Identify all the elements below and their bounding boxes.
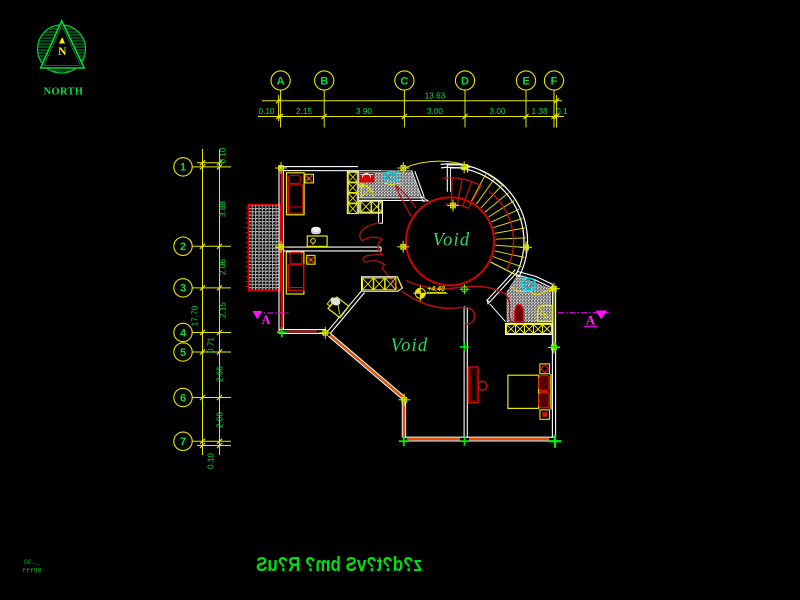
svg-text:6: 6 <box>180 392 186 404</box>
svg-text:2: 2 <box>180 241 186 253</box>
svg-text:3.90: 3.90 <box>356 107 372 116</box>
svg-text:2.08: 2.08 <box>216 412 225 428</box>
svg-text:17.70: 17.70 <box>191 305 200 326</box>
svg-text:3.00: 3.00 <box>427 107 443 116</box>
svg-text:A: A <box>586 313 596 328</box>
svg-text:1.38: 1.38 <box>532 107 548 116</box>
svg-text:A: A <box>277 75 285 87</box>
svg-text:2.06: 2.06 <box>219 259 228 275</box>
svg-text:z?d?t?vS bm? R?uS: z?d?t?vS bm? R?uS <box>256 553 422 576</box>
svg-text:1: 1 <box>180 162 186 174</box>
svg-text:C: C <box>400 75 408 87</box>
svg-text:F: F <box>551 75 558 87</box>
svg-text:0.1: 0.1 <box>556 107 568 116</box>
svg-text:0.10: 0.10 <box>259 107 275 116</box>
svg-text:0.71: 0.71 <box>207 337 216 353</box>
svg-text:N: N <box>58 46 67 58</box>
svg-text:2.66: 2.66 <box>216 366 225 382</box>
svg-text:E: E <box>522 75 529 87</box>
svg-text:5: 5 <box>180 347 186 359</box>
svg-text:2.15: 2.15 <box>219 302 228 318</box>
svg-text:GC._: GC._ <box>24 559 40 566</box>
svg-text:Void: Void <box>391 336 429 356</box>
svg-text:0.10: 0.10 <box>207 453 216 469</box>
svg-text:7: 7 <box>180 436 186 448</box>
svg-text:A: A <box>261 313 270 327</box>
svg-text:B: B <box>320 75 328 87</box>
svg-text:Void: Void <box>433 231 471 251</box>
svg-text:0.10: 0.10 <box>219 147 228 163</box>
svg-text:3.88: 3.88 <box>219 201 228 217</box>
svg-text:4: 4 <box>180 327 187 339</box>
svg-text:3: 3 <box>180 283 186 295</box>
svg-text:13.63: 13.63 <box>425 91 446 100</box>
svg-text:2.15: 2.15 <box>296 107 312 116</box>
svg-text:fff98: fff98 <box>22 568 42 575</box>
svg-text:NORTH: NORTH <box>44 87 84 98</box>
svg-text:3.00: 3.00 <box>490 107 506 116</box>
svg-text:D: D <box>461 75 469 87</box>
